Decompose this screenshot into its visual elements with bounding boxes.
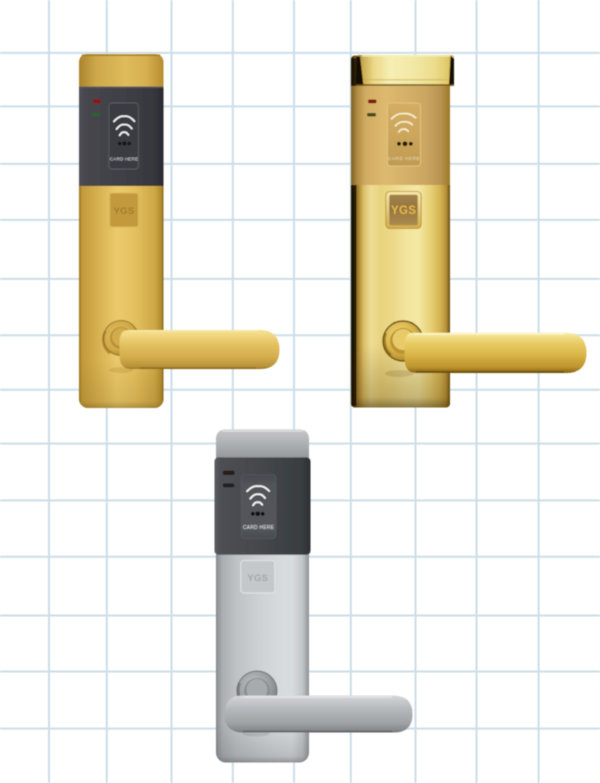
svg-text:CARD HERE: CARD HERE: [110, 156, 139, 161]
svg-text:CARD HERE: CARD HERE: [243, 525, 275, 531]
svg-text:CARD HERE: CARD HERE: [388, 156, 420, 162]
svg-text:YGS: YGS: [247, 573, 268, 584]
svg-text:YGS: YGS: [114, 206, 135, 217]
svg-text:YGS: YGS: [391, 205, 416, 217]
